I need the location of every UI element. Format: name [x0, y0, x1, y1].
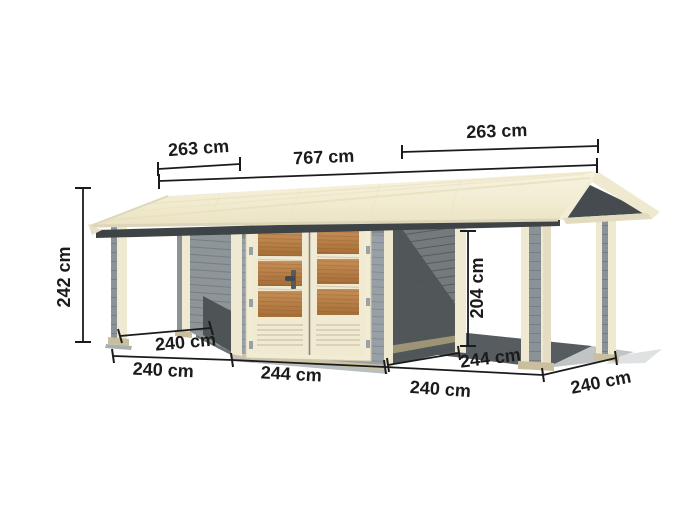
shed — [170, 215, 470, 375]
dim-roof-total-label: 767 cm — [293, 146, 355, 169]
dim-right-canopy-width-label: 240 cm — [409, 377, 471, 401]
dim-total-height-label: 242 cm — [54, 246, 74, 307]
dim-shed-front-width-label: 244 cm — [260, 362, 322, 385]
dimension-diagram: 263 cm 767 cm 263 cm 242 cm 204 — [0, 0, 700, 525]
left-back-post — [175, 228, 192, 338]
right-back-post — [593, 219, 619, 362]
dim-roof-left-label: 263 cm — [167, 136, 229, 160]
front-right-corner-trim — [384, 226, 393, 369]
dim-left-canopy-depth-label: 240 cm — [154, 329, 217, 354]
dim-roof-left: 263 cm — [158, 136, 240, 176]
dim-roof-right: 263 cm — [402, 120, 598, 159]
dim-roof-right-label: 263 cm — [466, 120, 528, 142]
shed-diagram-canvas: 263 cm 767 cm 263 cm 242 cm 204 — [0, 0, 700, 525]
dim-total-height: 242 cm — [54, 188, 91, 342]
dim-right-canopy-depth-label: 240 cm — [569, 366, 633, 397]
right-front-post — [518, 212, 554, 371]
double-door — [246, 219, 371, 361]
left-front-post — [108, 227, 129, 346]
front-left-corner-trim — [231, 233, 242, 356]
dim-clearance-height-label: 204 cm — [467, 257, 487, 318]
dim-left-canopy-width-label: 240 cm — [132, 359, 194, 382]
back-right-corner-trim — [455, 221, 466, 353]
